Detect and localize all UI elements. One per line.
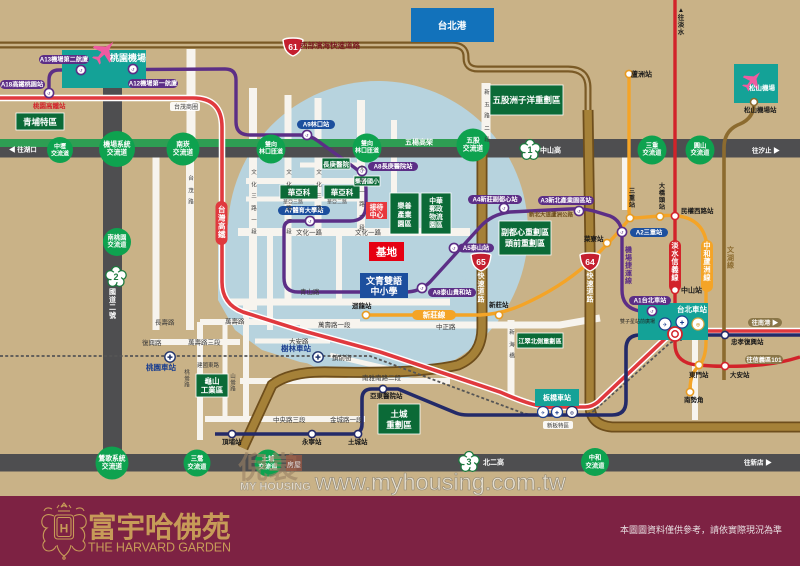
svg-text:快速道路: 快速道路 bbox=[587, 271, 595, 303]
svg-text:快速道路: 快速道路 bbox=[478, 271, 486, 303]
svg-text:✈: ✈ bbox=[663, 322, 668, 329]
svg-text:交流道: 交流道 bbox=[586, 461, 606, 470]
svg-text:青山路: 青山路 bbox=[300, 287, 320, 296]
svg-text:重劃區: 重劃區 bbox=[386, 420, 412, 430]
svg-text:↺: ↺ bbox=[308, 219, 312, 224]
svg-text:A1台北車站: A1台北車站 bbox=[634, 297, 667, 305]
svg-text:文化一路: 文化一路 bbox=[296, 228, 323, 237]
svg-text:A13機場第二航廈: A13機場第二航廈 bbox=[40, 56, 89, 64]
svg-text:新北大道蘆洲公路: 新北大道蘆洲公路 bbox=[529, 211, 574, 219]
svg-text:板橋車站: 板橋車站 bbox=[543, 393, 571, 402]
svg-text:接待: 接待 bbox=[370, 203, 384, 212]
svg-text:H: H bbox=[60, 522, 69, 536]
svg-text:www.myhousing.com.tw: www.myhousing.com.tw bbox=[314, 469, 567, 495]
svg-text:↺: ↺ bbox=[131, 67, 135, 72]
svg-text:⊕: ⊕ bbox=[696, 323, 701, 329]
svg-text:文青雙語: 文青雙語 bbox=[365, 275, 402, 286]
svg-text:山鶯路: 山鶯路 bbox=[230, 372, 236, 393]
svg-text:↺: ↺ bbox=[47, 91, 51, 96]
svg-text:65: 65 bbox=[476, 257, 486, 267]
svg-text:五股洲子洋重劃區: 五股洲子洋重劃區 bbox=[492, 95, 561, 105]
svg-text:三鶯: 三鶯 bbox=[191, 454, 204, 463]
svg-text:A2三重站: A2三重站 bbox=[636, 229, 663, 237]
svg-text:建國東路: 建國東路 bbox=[197, 361, 220, 369]
svg-text:萬壽路: 萬壽路 bbox=[225, 317, 245, 326]
svg-text:↺: ↺ bbox=[305, 133, 309, 138]
svg-text:國道二號: 國道二號 bbox=[109, 287, 116, 319]
svg-text:中華: 中華 bbox=[429, 196, 443, 205]
svg-text:蘆洲站: 蘆洲站 bbox=[631, 70, 652, 79]
svg-text:工業區: 工業區 bbox=[201, 385, 224, 395]
svg-text:鶯歌系統: 鶯歌系統 bbox=[98, 454, 125, 463]
svg-text:↺: ↺ bbox=[502, 206, 506, 211]
svg-text:南雅南路二段: 南雅南路二段 bbox=[362, 373, 402, 382]
svg-text:園區: 園區 bbox=[398, 219, 412, 228]
svg-text:東門站: 東門站 bbox=[689, 370, 709, 379]
svg-text:新海橋: 新海橋 bbox=[508, 328, 515, 360]
svg-text:江翠北側重劃區: 江翠北側重劃區 bbox=[518, 338, 561, 346]
svg-text:圓山: 圓山 bbox=[694, 141, 707, 150]
svg-text:迴龍站: 迴龍站 bbox=[351, 301, 372, 310]
svg-text:林口匝道: 林口匝道 bbox=[355, 147, 379, 155]
svg-text:桃園車站: 桃園車站 bbox=[146, 362, 176, 372]
svg-text:↺: ↺ bbox=[420, 286, 424, 291]
svg-text:金城路一段: 金城路一段 bbox=[330, 415, 363, 424]
svg-text:✚: ✚ bbox=[680, 320, 685, 327]
svg-text:忠孝復興站: 忠孝復興站 bbox=[731, 337, 764, 346]
svg-text:菜寮站: 菜寮站 bbox=[583, 234, 604, 243]
svg-text:A18高鐵桃園站: A18高鐵桃園站 bbox=[1, 81, 44, 89]
svg-text:中山站: 中山站 bbox=[681, 286, 702, 295]
svg-text:A9林口站: A9林口站 bbox=[303, 121, 330, 129]
svg-text:土城站: 土城站 bbox=[348, 437, 368, 446]
svg-text:往信義區101: 往信義區101 bbox=[746, 356, 782, 364]
svg-text:南崁: 南崁 bbox=[176, 140, 190, 149]
svg-text:新莊站: 新莊站 bbox=[489, 300, 509, 309]
svg-text:台北車站: 台北車站 bbox=[677, 304, 707, 314]
svg-text:文湖線: 文湖線 bbox=[727, 245, 735, 270]
svg-text:中小學: 中小學 bbox=[370, 286, 397, 297]
svg-text:◀ 往湖口: ◀ 往湖口 bbox=[9, 145, 37, 154]
svg-text:交流道: 交流道 bbox=[463, 144, 484, 153]
svg-text:交流道: 交流道 bbox=[107, 148, 128, 157]
svg-text:A5泰山站: A5泰山站 bbox=[463, 244, 490, 252]
svg-text:土城: 土城 bbox=[390, 409, 408, 419]
svg-text:淡水信義線: 淡水信義線 bbox=[670, 241, 679, 282]
svg-text:青埔特區: 青埔特區 bbox=[23, 117, 58, 127]
svg-text:西部濱海快速道路: 西部濱海快速道路 bbox=[300, 40, 360, 50]
svg-text:中心: 中心 bbox=[370, 210, 384, 219]
svg-text:交流道: 交流道 bbox=[108, 240, 128, 249]
svg-text:61: 61 bbox=[288, 42, 298, 52]
svg-text:台灣高鐵: 台灣高鐵 bbox=[218, 204, 226, 239]
svg-text:龜山: 龜山 bbox=[205, 376, 220, 386]
svg-text:✚: ✚ bbox=[167, 354, 173, 362]
svg-text:機場捷運線: 機場捷運線 bbox=[625, 245, 633, 285]
svg-text:交流道: 交流道 bbox=[188, 462, 208, 471]
svg-text:↺: ↺ bbox=[620, 230, 624, 235]
svg-text:大安站: 大安站 bbox=[730, 370, 750, 379]
svg-text:新板特區: 新板特區 bbox=[547, 422, 570, 430]
svg-text:↺: ↺ bbox=[79, 68, 83, 73]
svg-text:↺: ↺ bbox=[577, 209, 581, 214]
svg-text:A3新北產業園區站: A3新北產業園區站 bbox=[540, 197, 592, 205]
svg-text:華亞科: 華亞科 bbox=[331, 187, 354, 197]
svg-text:北二高: 北二高 bbox=[483, 458, 504, 467]
svg-text:桃園高鐵站: 桃園高鐵站 bbox=[33, 101, 66, 110]
svg-text:萬壽路三段: 萬壽路三段 bbox=[188, 338, 221, 347]
svg-text:✈: ✈ bbox=[541, 411, 545, 417]
svg-text:交流道: 交流道 bbox=[51, 150, 69, 158]
svg-text:長庚醫院: 長庚醫院 bbox=[323, 160, 350, 169]
svg-text:往汐止 ▶: 往汐止 ▶ bbox=[752, 146, 780, 155]
svg-text:本圖圖資料僅供參考，請依實際現況為準: 本圖圖資料僅供參考，請依實際現況為準 bbox=[620, 524, 782, 535]
svg-text:中山高: 中山高 bbox=[540, 146, 561, 155]
svg-text:桃鶯路: 桃鶯路 bbox=[184, 368, 190, 389]
svg-text:大安路: 大安路 bbox=[289, 337, 309, 346]
svg-text:THE HARVARD GARDEN: THE HARVARD GARDEN bbox=[88, 541, 231, 555]
svg-text:中正路: 中正路 bbox=[436, 322, 456, 331]
svg-text:桃園機場: 桃園機場 bbox=[110, 52, 146, 63]
svg-text:3: 3 bbox=[466, 457, 471, 467]
svg-text:中和: 中和 bbox=[589, 453, 602, 462]
svg-text:✚: ✚ bbox=[555, 411, 559, 417]
svg-text:頭前重劃區: 頭前重劃區 bbox=[505, 238, 545, 248]
svg-text:三重: 三重 bbox=[646, 141, 659, 150]
svg-text:五楊高架: 五楊高架 bbox=[405, 138, 433, 147]
svg-text:房屋: 房屋 bbox=[287, 460, 301, 469]
svg-text:雙向: 雙向 bbox=[265, 141, 277, 149]
svg-text:✚: ✚ bbox=[315, 354, 321, 362]
svg-text:▲往淡水: ▲往淡水 bbox=[677, 7, 685, 36]
svg-text:松山機場: 松山機場 bbox=[749, 83, 776, 92]
svg-text:物流: 物流 bbox=[429, 212, 443, 221]
svg-text:中和蘆洲線: 中和蘆洲線 bbox=[702, 241, 711, 282]
svg-text:1: 1 bbox=[527, 145, 532, 155]
svg-text:華亞二路: 華亞二路 bbox=[327, 199, 347, 206]
svg-text:中壢: 中壢 bbox=[54, 143, 66, 151]
svg-text:松山機場站: 松山機場站 bbox=[744, 105, 777, 114]
svg-text:往新店 ▶: 往新店 ▶ bbox=[744, 458, 772, 467]
svg-text:郵政: 郵政 bbox=[429, 204, 443, 213]
svg-text:台茂商圈: 台茂商圈 bbox=[174, 103, 198, 111]
svg-text:64: 64 bbox=[585, 257, 595, 267]
svg-text:A4新莊副都心站: A4新莊副都心站 bbox=[472, 196, 518, 204]
svg-text:永寧站: 永寧站 bbox=[301, 437, 322, 446]
svg-text:長壽路: 長壽路 bbox=[155, 318, 175, 327]
svg-text:交流道: 交流道 bbox=[173, 148, 194, 157]
svg-text:亞東醫院站: 亞東醫院站 bbox=[370, 391, 403, 400]
svg-text:復興路: 復興路 bbox=[142, 338, 162, 347]
svg-text:↺: ↺ bbox=[650, 309, 654, 314]
svg-text:萬壽路一段: 萬壽路一段 bbox=[318, 320, 351, 329]
svg-text:富宇哈佛苑: 富宇哈佛苑 bbox=[88, 511, 231, 544]
svg-text:頂埔站: 頂埔站 bbox=[222, 437, 242, 446]
svg-text:↺: ↺ bbox=[452, 246, 456, 251]
svg-text:副都心重劃區: 副都心重劃區 bbox=[501, 227, 549, 237]
svg-text:台茂路: 台茂路 bbox=[187, 174, 194, 206]
svg-text:華亞三路: 華亞三路 bbox=[283, 199, 303, 206]
svg-text:2: 2 bbox=[113, 272, 118, 282]
svg-text:大橋頭站: 大橋頭站 bbox=[659, 182, 666, 211]
svg-text:A12機場第一航廈: A12機場第一航廈 bbox=[129, 80, 178, 88]
svg-text:園區: 園區 bbox=[429, 220, 443, 229]
svg-text:南桃園: 南桃園 bbox=[108, 233, 127, 242]
svg-text:MY HOUSING: MY HOUSING bbox=[240, 481, 311, 493]
svg-text:交流道: 交流道 bbox=[102, 462, 123, 471]
svg-text:華亞科: 華亞科 bbox=[288, 187, 311, 197]
svg-text:A8長庚醫院站: A8長庚醫院站 bbox=[374, 163, 414, 171]
svg-text:基地: 基地 bbox=[375, 246, 397, 259]
svg-text:台北港: 台北港 bbox=[438, 20, 467, 32]
svg-text:南勢角: 南勢角 bbox=[684, 395, 704, 404]
svg-text:新莊線: 新莊線 bbox=[423, 310, 446, 320]
svg-text:五股: 五股 bbox=[466, 136, 480, 145]
svg-text:A8泰山貴和站: A8泰山貴和站 bbox=[433, 289, 473, 297]
svg-text:機場系統: 機場系統 bbox=[103, 140, 130, 149]
svg-text:往南港 ▶: 往南港 ▶ bbox=[752, 319, 779, 327]
svg-text:民權西路站: 民權西路站 bbox=[681, 206, 714, 215]
svg-text:雙子星站前廣場: 雙子星站前廣場 bbox=[620, 318, 655, 325]
svg-text:交流道: 交流道 bbox=[643, 148, 663, 157]
svg-text:林口匝道: 林口匝道 bbox=[259, 148, 283, 156]
svg-text:交流道: 交流道 bbox=[691, 148, 711, 157]
svg-text:中央路三段: 中央路三段 bbox=[273, 415, 306, 424]
svg-text:產業: 產業 bbox=[397, 210, 413, 219]
svg-text:三重站: 三重站 bbox=[629, 188, 636, 209]
svg-text:⊕: ⊕ bbox=[570, 411, 574, 417]
svg-text:鎮前街: 鎮前街 bbox=[332, 353, 352, 362]
svg-text:雙向: 雙向 bbox=[361, 140, 373, 148]
svg-text:樂善: 樂善 bbox=[398, 201, 412, 210]
